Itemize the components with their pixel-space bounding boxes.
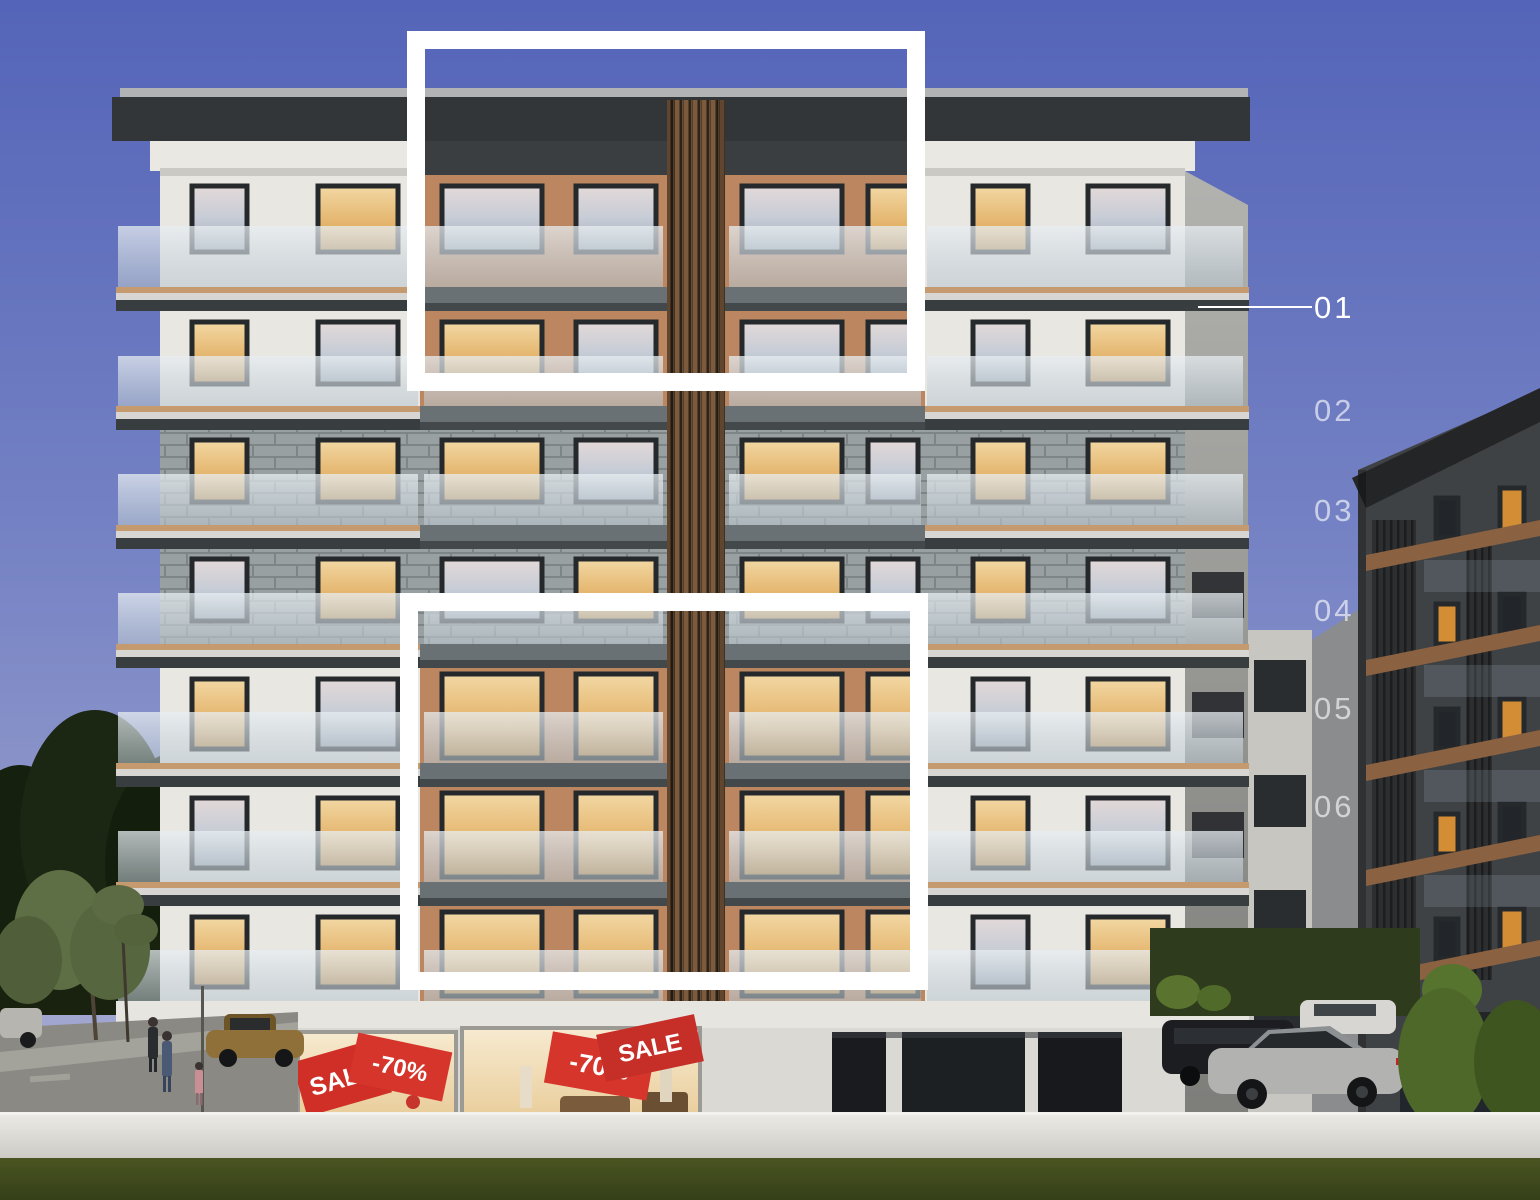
slat-panel: [1372, 520, 1416, 980]
floor-label-04[interactable]: 04: [1314, 595, 1354, 626]
bush: [1156, 975, 1200, 1009]
highlight-box-upper-section[interactable]: [407, 31, 925, 391]
shop-window-right: -70% SALE: [462, 1014, 704, 1126]
window: [1254, 775, 1306, 827]
window: [1436, 498, 1458, 538]
floor-label-06[interactable]: 06: [1314, 791, 1354, 822]
bush: [1197, 985, 1231, 1011]
window: [1254, 660, 1306, 712]
window: [1436, 814, 1458, 854]
floor-label-03[interactable]: 03: [1314, 495, 1354, 526]
floor-label-05[interactable]: 05: [1314, 693, 1354, 724]
window: [1500, 488, 1524, 530]
shop-window-left: SALE -70%: [292, 1032, 456, 1122]
window: [1436, 709, 1458, 749]
floor-selector-screen: SALE -70% -70% SALE: [0, 0, 1540, 1200]
entrance-glazing: [832, 1032, 1122, 1122]
grass-strip: [0, 1158, 1540, 1200]
floor-label-02[interactable]: 02: [1314, 395, 1354, 426]
highlight-box-lower-section[interactable]: [400, 593, 928, 990]
floor-label-01[interactable]: 01: [1314, 292, 1354, 323]
floor-01-leader-line: [1198, 306, 1312, 308]
window: [1436, 604, 1458, 644]
window: [1436, 919, 1458, 959]
